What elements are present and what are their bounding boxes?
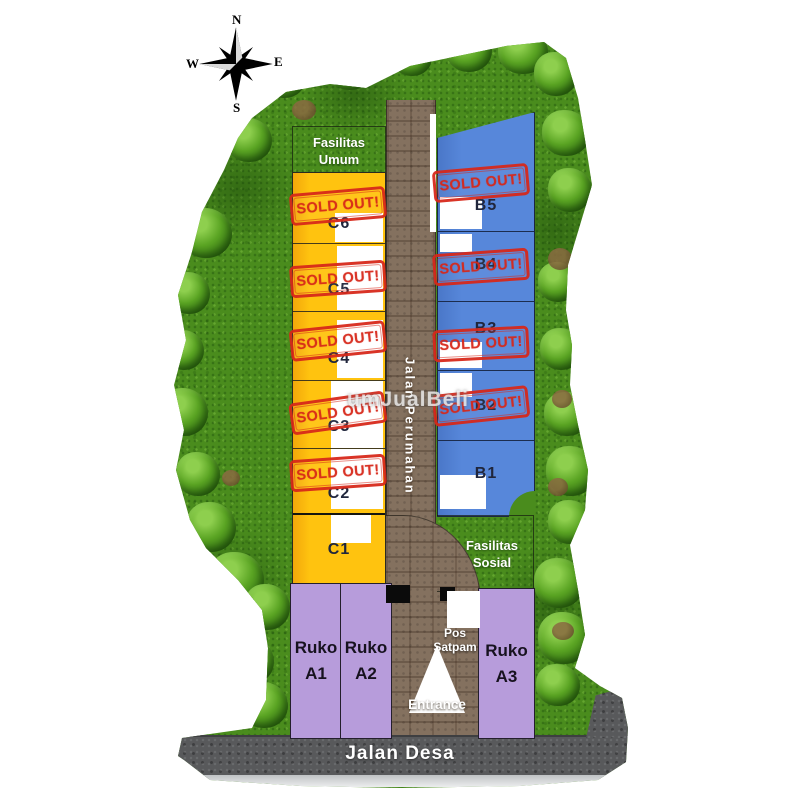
jalan-perumahan-label: Jalan Perumahan xyxy=(386,318,434,533)
ruko-a2-label-line1: Ruko xyxy=(345,635,388,661)
guardhouse-building xyxy=(447,591,480,628)
tree-icon xyxy=(228,638,274,684)
dirt-patch xyxy=(552,390,572,408)
jalan-desa-label: Jalan Desa xyxy=(300,743,500,765)
compass-south-label: S xyxy=(233,100,240,116)
tree-icon xyxy=(240,682,288,728)
tree-icon xyxy=(168,272,210,314)
ruko-a1-label-line2: A1 xyxy=(305,661,327,687)
compass-rose: N E S W xyxy=(186,12,286,116)
tree-icon xyxy=(328,48,372,90)
pos-satpam-label-line1: Pos xyxy=(444,626,466,640)
fasilitas-sosial-zone: Fasilitas Sosial xyxy=(437,515,534,592)
unit-b1-label: B1 xyxy=(438,465,534,483)
road-curb xyxy=(180,775,624,787)
jalan-desa-road-corner xyxy=(586,686,630,738)
dirt-patch xyxy=(548,248,572,270)
pos-satpam-label: Pos Satpam xyxy=(422,626,488,654)
dirt-patch xyxy=(548,478,568,496)
fasilitas-umum-zone: Fasilitas Umum xyxy=(292,126,386,175)
fasilitas-umum-label-line1: Fasilitas xyxy=(313,134,365,151)
unit-b4-driveway xyxy=(440,234,472,252)
tree-icon xyxy=(244,584,290,630)
sold-out-stamp-b4: SOLD OUT! xyxy=(432,248,530,287)
tree-icon xyxy=(534,558,584,608)
ruko-a2-block: Ruko A2 xyxy=(340,583,392,739)
unit-c1: C1 xyxy=(293,515,385,579)
watermark: umJualBeli xyxy=(318,388,498,412)
dirt-patch xyxy=(292,100,316,120)
compass-west-label: W xyxy=(186,56,199,72)
fasilitas-sosial-label-line2: Sosial xyxy=(473,554,511,571)
tree-icon xyxy=(540,328,582,370)
site-area: Fasilitas Umum C6 C5 C4 C3 C2 xyxy=(0,0,800,800)
tree-icon xyxy=(548,500,592,544)
tree-icon xyxy=(446,28,492,72)
tree-icon xyxy=(164,330,204,370)
tree-icon xyxy=(180,208,232,258)
dirt-patch xyxy=(552,622,574,640)
tree-icon xyxy=(160,388,208,436)
tree-icon xyxy=(392,38,432,76)
fasilitas-umum-label-line2: Umum xyxy=(319,151,359,168)
dirt-patch xyxy=(222,470,240,486)
tree-icon xyxy=(176,452,220,496)
entrance-label: Entrance xyxy=(395,697,479,712)
site-plan-canvas: N E S W xyxy=(0,0,800,800)
gate-post xyxy=(386,585,410,603)
compass-star-icon xyxy=(198,26,274,102)
tree-icon xyxy=(536,664,580,706)
ruko-a2-label-line2: A2 xyxy=(355,661,377,687)
sold-out-stamp-c5: SOLD OUT! xyxy=(289,260,387,299)
unit-c1-label: C1 xyxy=(293,541,385,559)
tree-icon xyxy=(186,502,236,552)
ruko-a1-label-line1: Ruko xyxy=(295,635,338,661)
ruko-a3-block: Ruko A3 xyxy=(478,588,535,739)
compass-north-label: N xyxy=(232,12,241,28)
unit-c1-driveway xyxy=(331,515,371,543)
tree-icon xyxy=(226,118,272,162)
block-c-column: C6 C5 C4 C3 C2 C1 xyxy=(292,172,386,585)
ruko-a3-label-line2: A3 xyxy=(496,664,518,690)
ruko-a3-label-line1: Ruko xyxy=(485,638,528,664)
tree-icon xyxy=(534,52,578,96)
compass-east-label: E xyxy=(274,54,283,70)
fasilitas-sosial-label-line1: Fasilitas xyxy=(466,537,518,554)
tree-icon xyxy=(542,110,590,156)
sold-out-stamp-c2: SOLD OUT! xyxy=(289,454,387,493)
tree-icon xyxy=(548,168,592,212)
ruko-a1-block: Ruko A1 xyxy=(290,583,342,739)
sold-out-stamp-b3: SOLD OUT! xyxy=(432,326,530,363)
